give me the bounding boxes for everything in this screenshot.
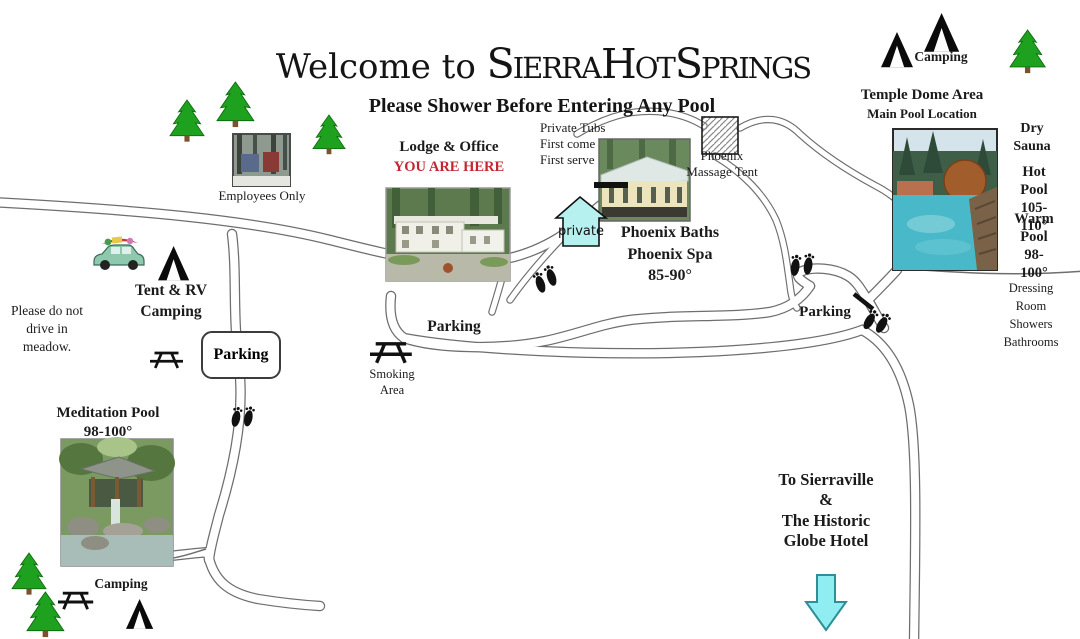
tent-icon	[158, 246, 189, 280]
pine-tree-icon	[170, 100, 204, 142]
employees-only-label: Employees Only	[218, 188, 305, 205]
phoenix-baths-label: Phoenix Baths Phoenix Spa 85-90°	[621, 222, 719, 287]
employees-photo	[233, 134, 290, 186]
lodge-photo	[386, 188, 510, 281]
title-welcome: Welcome to	[276, 47, 487, 87]
parking-center-label: Parking	[427, 317, 480, 337]
pine-tree-icon	[313, 115, 345, 154]
dressing-rooms-label: Dressing Room Showers Bathrooms	[1004, 279, 1059, 352]
lodge-office-label: Lodge & Office YOU ARE HERE	[394, 138, 504, 176]
pine-tree-icon	[217, 82, 254, 127]
private-sign-label: private	[558, 224, 604, 239]
resort-map: Welcome to Sierra Hot Springs Please Sho…	[0, 0, 1080, 639]
temple-dome-label: Temple Dome Area Main Pool Location	[861, 86, 983, 122]
main-pool-photo	[893, 129, 997, 270]
warm-pool-label: Warm Pool 98-100°	[1011, 210, 1057, 283]
meadow-note-label: Please do not drive in meadow.	[11, 302, 83, 355]
parking-box-label: Parking	[213, 346, 268, 364]
picnic-table-icon	[150, 353, 183, 368]
car-icon	[94, 236, 144, 270]
shower-notice: Please Shower Before Entering Any Pool	[369, 95, 715, 118]
temple-dome-subtitle: Main Pool Location	[861, 106, 983, 123]
parking-right-label: Parking	[799, 303, 851, 323]
down-arrow-icon	[806, 575, 846, 630]
meditation-pool-label: Meditation Pool 98-100°	[57, 404, 160, 442]
massage-tent-label: Phoenix Massage Tent	[686, 148, 757, 179]
camping-top-label: Camping	[914, 48, 967, 66]
pine-tree-icon	[12, 553, 46, 595]
title-resort-name: Sierra Hot Springs	[487, 40, 811, 88]
smoking-area-label: Smoking Area	[369, 366, 414, 398]
tent-icon	[881, 32, 913, 67]
private-tubs-label: Private Tubs First come First serve	[540, 120, 605, 168]
tent-icon	[126, 599, 153, 629]
page-title: Welcome to Sierra Hot Springs	[276, 40, 810, 88]
temple-dome-title: Temple Dome Area	[861, 86, 983, 106]
dry-sauna-label: Dry Sauna	[1013, 120, 1050, 155]
picnic-table-icon	[370, 344, 412, 363]
sierraville-label: To Sierraville & The Historic Globe Hote…	[778, 470, 873, 552]
pine-tree-icon	[27, 592, 64, 637]
lodge-office-title: Lodge & Office	[394, 138, 504, 158]
picnic-table-icon	[58, 593, 93, 609]
camping-bottom-label: Camping	[94, 575, 147, 593]
phoenix-baths-photo	[599, 139, 690, 221]
tent-rv-camping-label: Tent & RV Camping	[135, 281, 207, 323]
gate-icon	[594, 182, 628, 188]
parking-box: Parking	[201, 331, 281, 379]
meditation-pool-photo	[59, 437, 175, 566]
you-are-here-label: YOU ARE HERE	[394, 158, 504, 177]
tent-icon	[924, 13, 959, 52]
pine-tree-icon	[1010, 30, 1045, 73]
